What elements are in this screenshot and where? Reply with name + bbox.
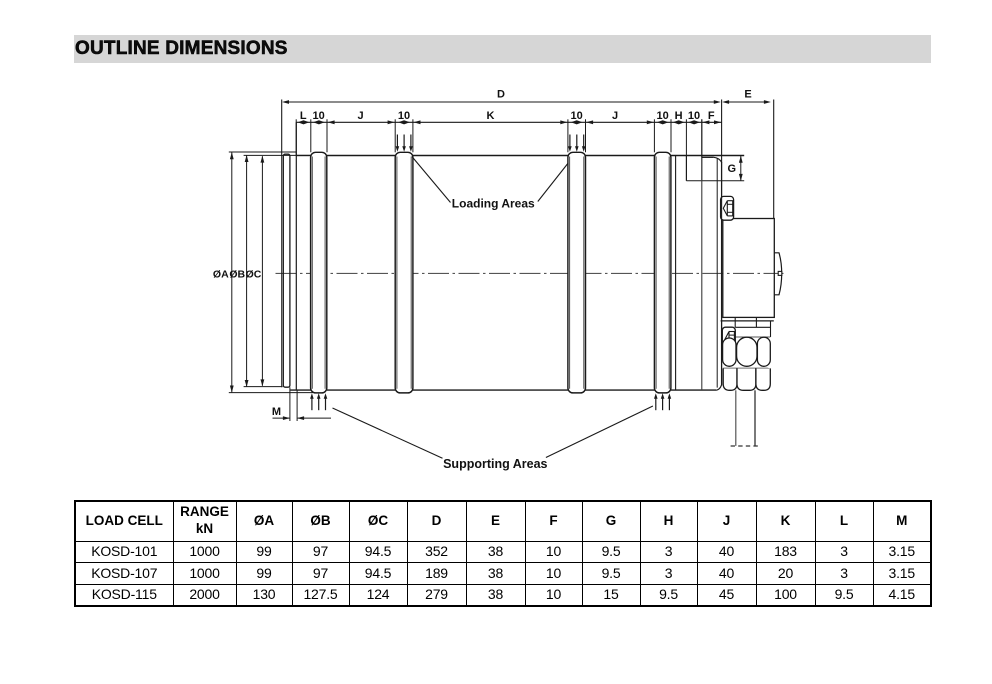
svg-text:ØA: ØA [213,269,229,281]
svg-text:D: D [497,89,505,101]
svg-text:G: G [728,163,737,175]
svg-text:F: F [708,110,715,122]
svg-text:K: K [487,110,495,122]
svg-text:10: 10 [570,110,582,122]
svg-text:E: E [744,89,751,101]
svg-text:10: 10 [656,110,668,122]
svg-text:Supporting Areas: Supporting Areas [443,457,547,471]
svg-text:H: H [675,110,683,122]
svg-text:ØB: ØB [229,269,245,281]
svg-text:10: 10 [312,110,324,122]
svg-text:Loading Areas: Loading Areas [452,196,535,210]
svg-text:10: 10 [398,110,410,122]
svg-text:L: L [300,110,307,122]
svg-text:M: M [272,406,281,418]
svg-text:ØC: ØC [246,269,262,281]
svg-text:J: J [612,110,618,122]
svg-text:J: J [357,110,363,122]
svg-text:10: 10 [688,110,700,122]
